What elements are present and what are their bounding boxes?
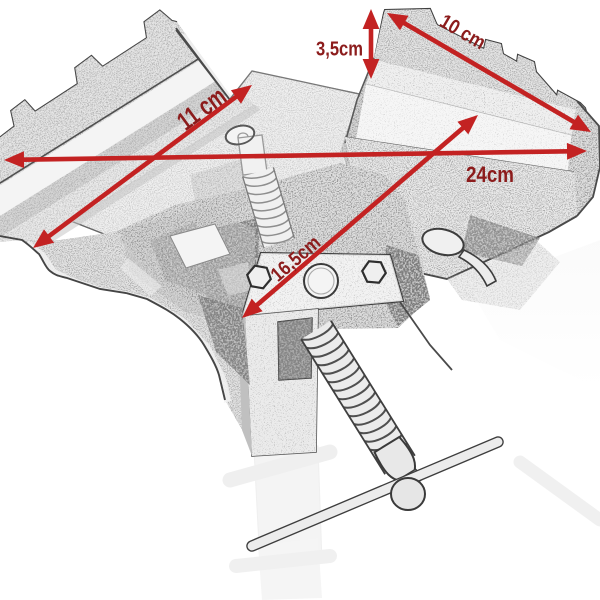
- svg-text:3,5cm: 3,5cm: [316, 39, 363, 61]
- svg-text:24cm: 24cm: [466, 162, 514, 187]
